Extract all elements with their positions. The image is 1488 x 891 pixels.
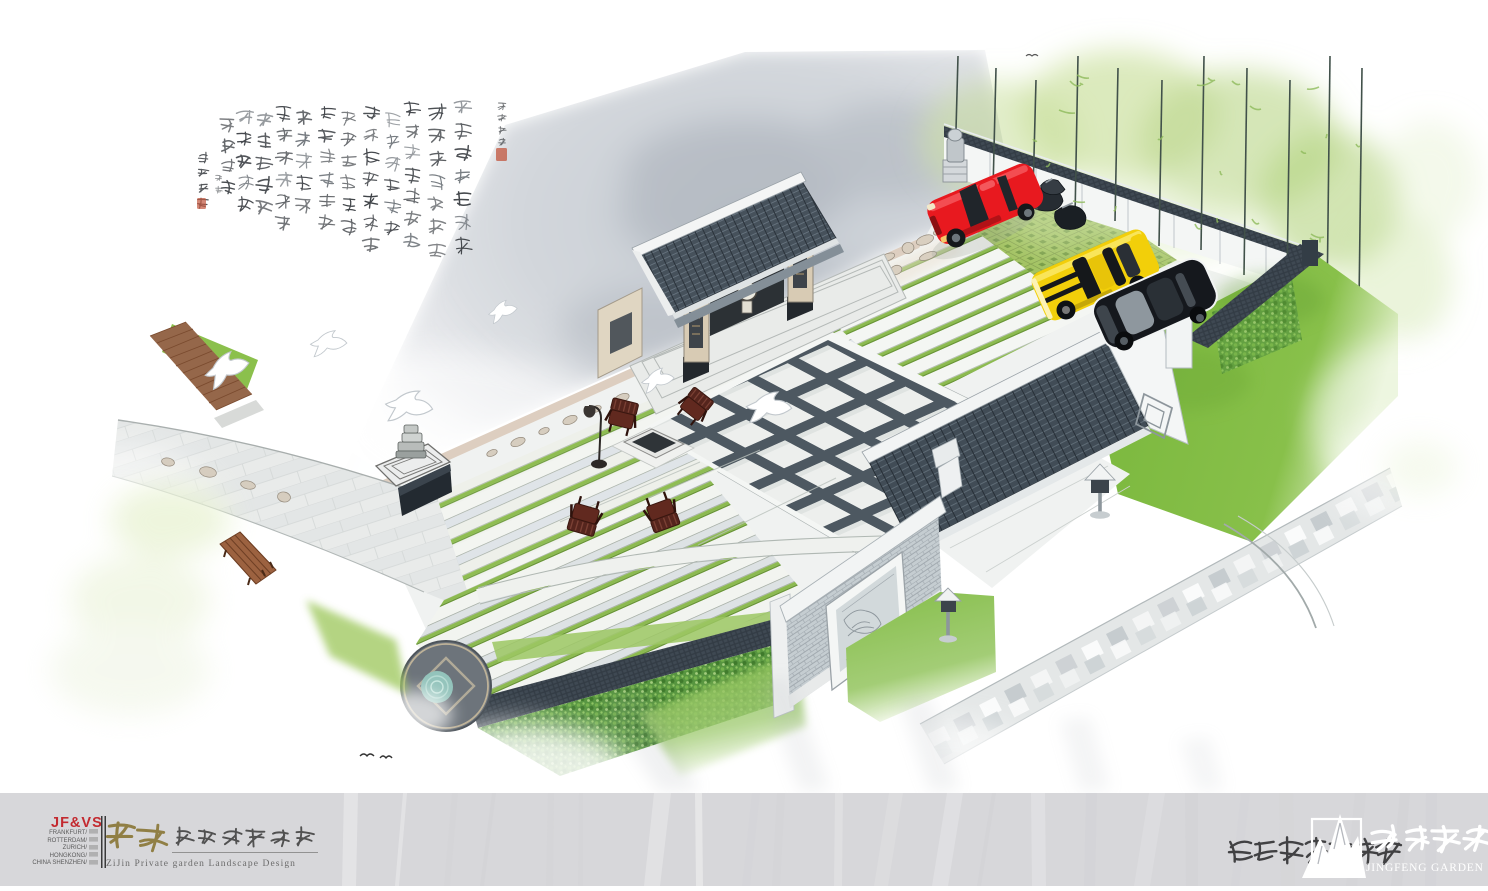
svg-text:JINGFENG GARDEN: JINGFENG GARDEN bbox=[1366, 862, 1484, 874]
svg-text:ZiJin Private garden Landscape: ZiJin Private garden Landscape Design bbox=[106, 859, 296, 869]
svg-text:ZURICH/: ZURICH/ bbox=[63, 845, 88, 851]
svg-text:FRANKFURT/: FRANKFURT/ bbox=[49, 830, 87, 836]
svg-text:CHINA SHENZHEN/: CHINA SHENZHEN/ bbox=[32, 860, 87, 866]
svg-text:HONGKONG/: HONGKONG/ bbox=[50, 853, 88, 859]
svg-text:JF&VS: JF&VS bbox=[51, 815, 103, 831]
svg-text:ROTTERDAM/: ROTTERDAM/ bbox=[47, 838, 87, 844]
